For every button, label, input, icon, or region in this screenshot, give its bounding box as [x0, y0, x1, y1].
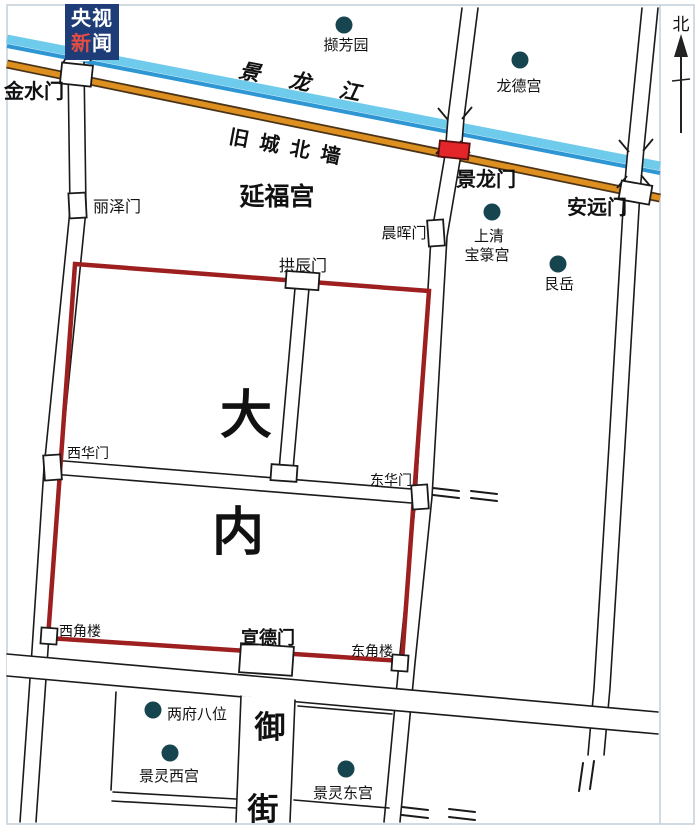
jinshui-gate-label: 金水门: [3, 79, 64, 103]
palace-wall: [48, 264, 429, 661]
xijiaolou-label: 西角楼: [59, 624, 101, 640]
west-road: [20, 62, 86, 822]
xuande-gate-box: [239, 643, 294, 676]
palace-name-char1: 大: [220, 387, 272, 445]
watermark-rest-char: 闻: [92, 33, 113, 55]
map-screenshot: 景龙江 旧城北墙 金水门 丽泽门 延福宫 晨晖门 拱辰门 景龙门 安远门 上清 …: [0, 0, 700, 830]
genyue-label: 艮岳: [544, 276, 574, 293]
gongchen-gate-label: 拱辰门: [279, 257, 327, 275]
donghua-gate-box: [411, 484, 429, 509]
middle-road: [52, 460, 424, 504]
xiefangyuan-label: 撷芳园: [323, 37, 368, 54]
xiefangyuan-dot: [336, 17, 353, 34]
dongjiaolou-tower-box: [391, 654, 408, 671]
watermark-line2: 新闻: [71, 32, 113, 57]
jinglong-gate-box: [438, 140, 470, 159]
donghua-gate-label: 东华门: [370, 473, 412, 489]
longdegong-label: 龙德宫: [496, 77, 541, 95]
jinglong-gate-label: 景龙门: [456, 167, 516, 191]
liangfubawei-label: 两府八位: [167, 706, 227, 723]
lize-gate-box: [68, 193, 86, 219]
watermark-line1: 央视: [71, 7, 113, 32]
jinglingdonggong-label: 景灵东宫: [313, 785, 373, 802]
watermark-accent-char: 新: [71, 33, 92, 55]
jinshui-gate-box: [60, 62, 93, 86]
liangfubawei-dot: [145, 702, 162, 719]
genyue-dot: [550, 256, 567, 273]
chenhui-gate-label: 晨晖门: [381, 225, 426, 242]
cctv-news-watermark: 央视 新闻: [65, 4, 119, 60]
shangqing-label-line2: 宝箓宫: [464, 247, 509, 264]
xijiaolou-tower-box: [40, 627, 57, 644]
road-continuation-marks: [402, 488, 594, 820]
anyuan-road: [588, 8, 658, 755]
north-arrow-head: [674, 34, 688, 57]
south-road: [7, 654, 658, 734]
gongchen-road-end-box: [270, 464, 297, 482]
jinglingxigong-dot: [162, 745, 179, 762]
chenhui-gate-box: [427, 219, 445, 246]
site-dots: [145, 17, 567, 778]
anyuan-gate-label: 安远门: [567, 195, 627, 219]
xihua-gate-label: 西华门: [67, 446, 109, 462]
jinglingdonggong-dot: [338, 761, 355, 778]
xuande-gate-label: 宣德门: [241, 627, 295, 648]
north-arrow-tick: [672, 79, 690, 81]
dongjiaolou-label: 东角楼: [351, 644, 393, 660]
xihua-gate-box: [43, 454, 62, 480]
shangqing-label-line1: 上清: [474, 228, 504, 245]
north-label: 北: [673, 15, 690, 34]
jinglingxigong-label: 景灵西宫: [139, 768, 199, 785]
lize-gate-label: 丽泽门: [93, 198, 141, 216]
north-compass: 北: [672, 15, 690, 133]
historical-map-canvas: 景龙江 旧城北墙 金水门 丽泽门 延福宫 晨晖门 拱辰门 景龙门 安远门 上清 …: [0, 0, 700, 830]
shangqing-dot: [484, 204, 501, 221]
longdegong-dot: [512, 52, 529, 69]
yujie-street-char2: 街: [247, 792, 279, 827]
yujie-street-char1: 御: [254, 710, 286, 745]
gongchen-road: [279, 288, 309, 470]
palace-name-char2: 内: [212, 504, 264, 562]
yanfugong-label: 延福宫: [238, 182, 314, 211]
